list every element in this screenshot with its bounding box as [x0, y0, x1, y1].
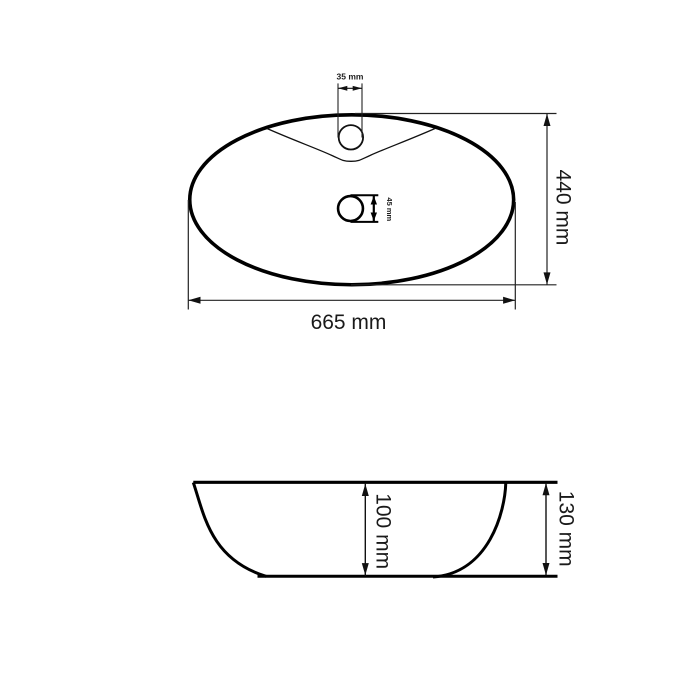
- svg-text:665 mm: 665 mm: [311, 311, 387, 334]
- svg-text:100 mm: 100 mm: [372, 493, 395, 569]
- svg-text:440 mm: 440 mm: [552, 170, 575, 246]
- svg-text:130 mm: 130 mm: [555, 491, 578, 567]
- svg-text:45 mm: 45 mm: [385, 197, 394, 221]
- svg-text:35 mm: 35 mm: [337, 72, 364, 82]
